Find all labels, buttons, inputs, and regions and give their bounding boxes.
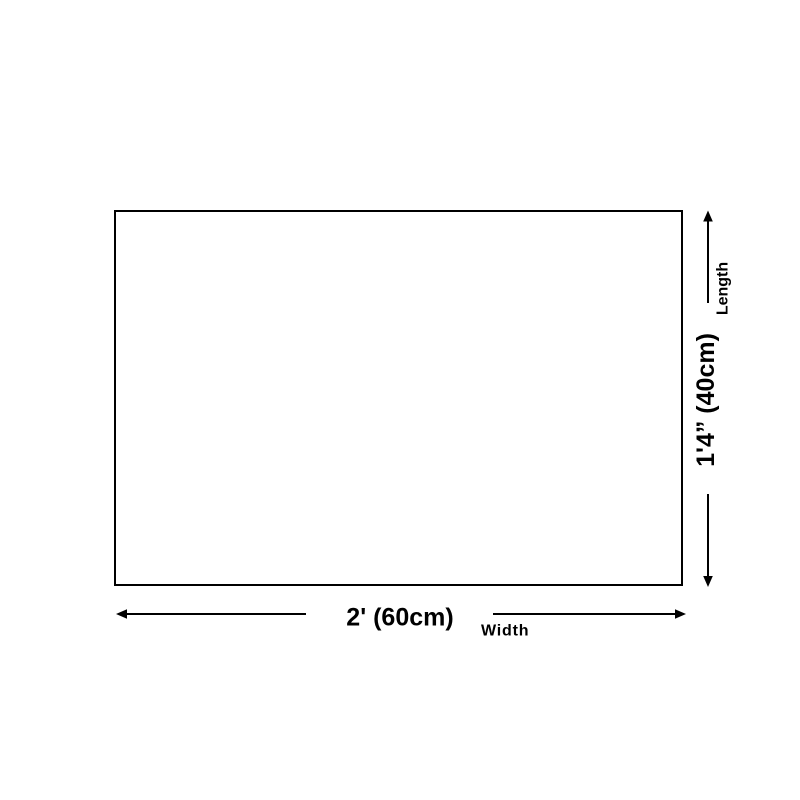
svg-text:Length: Length bbox=[715, 262, 732, 315]
svg-text:2' (60cm): 2' (60cm) bbox=[346, 604, 453, 632]
svg-text:1'4” (40cm): 1'4” (40cm) bbox=[692, 333, 720, 467]
svg-text:Width: Width bbox=[481, 623, 529, 640]
